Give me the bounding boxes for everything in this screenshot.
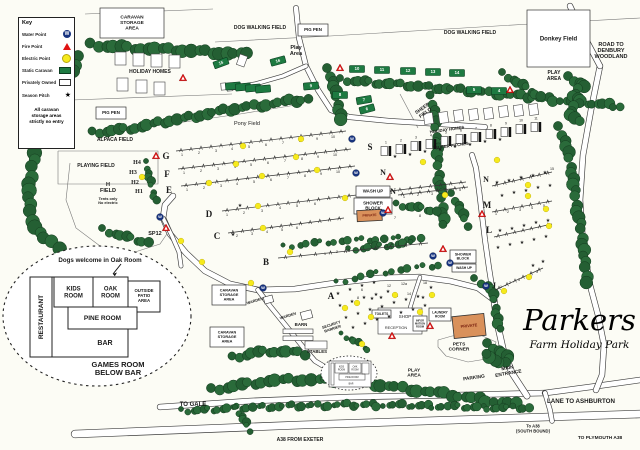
area-box-label: SHOWERBLOCK [455, 252, 472, 260]
park-brand: Parkers Farm Holiday Park [522, 306, 637, 351]
hedge-tree [98, 224, 105, 231]
row-label: H3 [129, 170, 137, 176]
legend-item-label: Water Point [22, 32, 46, 37]
holiday-home [453, 109, 463, 121]
season-pitch-icon: ★ [453, 144, 458, 150]
super-pitch-plot [501, 128, 508, 137]
field-label: DOG WALKING FIELD [234, 25, 287, 31]
water-point-icon: W [63, 30, 71, 38]
pitch-number: 5 [250, 163, 252, 167]
super-pitch-plot [396, 145, 403, 154]
electric-point-icon [233, 161, 239, 167]
privately-owned-van [389, 146, 392, 156]
electric-point-icon [314, 167, 320, 173]
season-pitch-icon: ★ [522, 223, 527, 229]
water-point-letter: W [448, 260, 452, 265]
road [75, 414, 640, 434]
season-pitch-icon: ★ [520, 240, 525, 246]
pitch-number: 4 [231, 147, 233, 151]
hedge-tree [398, 399, 407, 408]
hedge-tree [580, 276, 593, 289]
legend-item: Privately Owned [22, 77, 71, 89]
hedge-tree [396, 234, 401, 239]
electric-point-icon [240, 143, 246, 149]
hedge-tree [366, 270, 374, 278]
pitch-number: 10 [333, 153, 337, 157]
season-pitch-icon: ★ [423, 303, 428, 309]
pitch-number: 3 [217, 167, 219, 171]
kids-room-mini-label: KIDSROOM [338, 366, 345, 371]
hedge-tree [334, 113, 347, 126]
field-label: TO PLYMOUTH A38 [578, 435, 623, 441]
pitch-number: 2 [243, 211, 245, 215]
season-pitch-icon: ★ [519, 175, 524, 181]
season-pitch-icon: ★ [379, 295, 384, 301]
pitch-number: 3 [215, 149, 217, 153]
electric-point-icon [359, 341, 365, 347]
hedge-tree [383, 271, 388, 276]
row-label: E [166, 185, 172, 195]
hedge-tree [497, 325, 504, 332]
season-pitch-icon: ★ [368, 307, 373, 313]
fire-point-icon [63, 43, 71, 50]
row-label: J [492, 281, 496, 290]
season-pitch-icon: ★ [421, 295, 426, 301]
hedge-tree [388, 269, 394, 275]
hedge-tree [127, 233, 134, 240]
private-area: PRIVATE [452, 313, 486, 338]
holiday-home [513, 104, 523, 116]
static-caravan-number: 12 [406, 68, 411, 73]
super-pitch-plot [381, 147, 388, 156]
row-label: N [380, 168, 386, 177]
privately-owned-van [419, 141, 422, 151]
super-pitch-plot [426, 140, 433, 149]
season-pitch-icon: ★ [370, 296, 375, 302]
electric-point-icon [298, 136, 304, 142]
map-legend: Key Water PointWFire PointElectric Point… [18, 17, 75, 149]
hedge-tree [206, 383, 215, 392]
row-label: F [164, 169, 170, 179]
legend-item-label: Electric Point [22, 56, 50, 61]
season-pitch-icon: ★ [387, 314, 392, 320]
season-pitch-icon: ★ [507, 178, 512, 184]
hedge-tree [323, 402, 332, 411]
legend-item-label: Static Caravan [22, 68, 53, 73]
electric-point-icon [501, 288, 507, 294]
pitch-number: 10 [336, 170, 340, 174]
pitch-number: 2 [200, 169, 202, 173]
super-pitch-number: 7 [475, 126, 477, 130]
row-label: N [390, 187, 396, 196]
hedge-tree [408, 239, 413, 244]
pitch-number: 7 [394, 216, 396, 220]
hedge-tree [417, 234, 425, 242]
pitch-number: 4 [266, 230, 268, 234]
games-room-label: GAMES ROOMBELOW BAR [92, 360, 145, 377]
pitch-number: 4 [531, 206, 533, 210]
water-point-letter: W [431, 253, 435, 258]
hedge-tree [575, 116, 584, 125]
bar-mini-label: BAR [349, 382, 354, 385]
oak-room-label: OAKROOM [101, 286, 120, 299]
hedge-tree [248, 403, 257, 412]
holiday-home [169, 55, 180, 68]
area-box-label: PIG PEN [304, 27, 322, 32]
fence-line [72, 94, 232, 100]
season-pitch-icon: ★ [408, 152, 413, 158]
hedge-tree [185, 409, 191, 415]
electric-point-icon [199, 259, 205, 265]
super-pitch-number: 11 [534, 116, 538, 120]
road [410, 277, 420, 308]
hedge-tree [418, 204, 424, 210]
static-caravan-number: 14 [455, 70, 460, 75]
season-pitch-icon: ★ [531, 263, 536, 269]
legend-title: Key [22, 20, 71, 26]
private-area-label: PRIVATE [362, 213, 377, 218]
super-pitch-number: 2 [400, 138, 402, 142]
hedge-tree [339, 331, 343, 335]
hedge-tree [213, 407, 220, 414]
pitch-number: 1 [500, 285, 502, 289]
privately-owned-van [494, 129, 497, 139]
electric-point-icon [178, 238, 184, 244]
hedge-tree [380, 403, 385, 408]
pitch-number: 9 [317, 155, 319, 159]
super-pitch-number: 1 [385, 140, 387, 144]
hedge-tree [420, 262, 425, 267]
field-label: SP12 [148, 231, 161, 237]
hedge-tree [144, 237, 154, 247]
pitch-number: 12a [401, 282, 407, 286]
holiday-home [154, 82, 165, 95]
hedge-tree [119, 123, 127, 131]
electric-point-icon [526, 274, 532, 280]
hedge-tree [297, 96, 305, 104]
hedge-tree [242, 378, 251, 387]
season-pitch-icon: ★ [495, 180, 500, 186]
legend-item: Water PointW [22, 28, 71, 40]
row-label: D [206, 209, 213, 219]
pitch-number: 6 [267, 161, 269, 165]
season-pitch-icon: ★ [399, 310, 404, 316]
season-pitch-icon: ★ [372, 280, 377, 286]
pitch-number: 3 [220, 184, 222, 188]
row-label: N [483, 175, 489, 184]
season-pitch-icon: ★ [536, 185, 541, 191]
pitch-number: 3 [519, 208, 521, 212]
field-label: RECEPTION [385, 326, 407, 330]
legend-item: Electric Point [22, 52, 71, 64]
row-label: G [162, 151, 169, 161]
privately-owned-van [539, 122, 542, 132]
row-label: L [486, 225, 492, 235]
hedge-tree [153, 196, 161, 204]
hedge-tree [482, 349, 491, 358]
electric-point-icon [248, 280, 254, 286]
bar-label: BAR [97, 340, 112, 347]
pitch-number: 6 [270, 178, 272, 182]
hedge-tree [288, 401, 295, 408]
hedge-tree [297, 402, 306, 411]
field-label: PETSCORNER [449, 342, 470, 353]
electric-point-icon [293, 154, 299, 160]
static-caravan [255, 85, 271, 93]
privately-owned-van [509, 127, 512, 137]
electric-point-icon [525, 193, 531, 199]
pitch-number: 1 [226, 213, 228, 217]
hedge-tree [609, 104, 616, 111]
row-label: S [367, 142, 372, 152]
hedge-tree [311, 238, 319, 246]
pitch-number: 5 [253, 180, 255, 184]
season-pitch-icon: ★ [544, 234, 549, 240]
season-pitch-icon: ★ [380, 304, 385, 310]
season-pitch-icon: ★ [534, 220, 539, 226]
hedge-tree [522, 83, 529, 90]
hedge-tree [564, 153, 573, 162]
pine-room-mini-label: PINE ROOM [345, 377, 358, 379]
pitch-number: 10 [331, 135, 335, 139]
season-pitch-icon: ★ [404, 297, 409, 303]
super-pitch-number: 8 [490, 123, 492, 127]
hedge-tree [359, 235, 364, 240]
hedge-tree [616, 103, 624, 111]
field-label: LANE TO ASHBURTON [547, 398, 615, 405]
electric-point-icon [543, 206, 549, 212]
legend-items: Water PointWFire PointElectric PointStat… [22, 28, 71, 101]
pitch-number: 6 [296, 226, 298, 230]
pitch-number: 5 [248, 145, 250, 149]
privately-owned-van [524, 124, 527, 134]
holiday-home [528, 103, 538, 115]
hedge-tree [343, 279, 348, 284]
hedge-tree [281, 243, 285, 247]
hedge-tree [447, 189, 454, 196]
season-pitch-icon: ★ [498, 228, 503, 234]
holiday-home [498, 105, 508, 117]
building [305, 341, 327, 349]
legend-item: Static Caravan [22, 65, 71, 77]
park-map-canvas: 123456789101110111213145487615169CARAVAN… [0, 0, 640, 450]
field-label: STABLES [307, 349, 327, 354]
hedge-tree [377, 242, 382, 247]
pitch-number: 4 [279, 206, 281, 210]
hedge-tree [314, 400, 321, 407]
water-point-letter: W [261, 285, 265, 290]
season-pitch-icon: ★ [411, 307, 416, 313]
pitch-number: 1 [324, 252, 326, 256]
hedge-tree [575, 224, 585, 234]
hedge-tree [484, 406, 490, 412]
pitch-number: 5 [459, 188, 461, 192]
pitch-number: 18 [423, 281, 427, 285]
private-area: PRIVATE [357, 209, 383, 221]
hedge-tree [334, 401, 340, 407]
holiday-home [151, 54, 162, 67]
hedge-tree [343, 236, 351, 244]
hedge-tree [455, 402, 460, 407]
electric-point-icon [494, 157, 500, 163]
hedge-tree [389, 401, 396, 408]
pitch-number: 5 [536, 270, 538, 274]
hedge-tree [258, 346, 266, 354]
electric-point-icon [546, 223, 552, 229]
pitch-number: 1 [403, 195, 405, 199]
area-box-label: PIG PEN [102, 110, 120, 115]
season-pitch-icon: ★ [548, 183, 553, 189]
hedge-tree [259, 402, 265, 408]
field-label: Tents onlyNo electric [98, 197, 118, 205]
hedge-tree [429, 405, 434, 410]
hedge-tree [228, 352, 236, 360]
field-label: PLAYAREA [547, 71, 562, 83]
row-label: A [328, 291, 335, 301]
electric-point-icon [392, 292, 398, 298]
season-pitch-icon: ★ [375, 317, 380, 323]
electric-point-icon [354, 300, 360, 306]
electric-point-icon [255, 203, 261, 209]
super-pitch-number: 9 [505, 121, 507, 125]
hedge-tree [426, 91, 434, 99]
legend-item-label: Privately Owned [22, 80, 56, 85]
pitch-number: 2 [198, 151, 200, 155]
season-pitch-icon: ★ [392, 300, 397, 306]
pitch-number: 3 [261, 209, 263, 213]
pitch-number: 8 [301, 157, 303, 161]
row-label: H4 [133, 160, 141, 166]
season-pitch-icon: ★ [348, 287, 353, 293]
hedge-tree [403, 264, 411, 272]
season-pitch-icon: ★ [429, 285, 434, 291]
hedge-tree [374, 269, 378, 273]
electric-point-icon [62, 54, 71, 63]
pitch-number: 8 [419, 214, 421, 218]
hedge-tree [464, 404, 471, 411]
field-label: HOLIDAY HOMES [129, 69, 171, 75]
super-pitch-plot [486, 130, 493, 139]
electric-point-icon [429, 292, 435, 298]
hedge-tree [470, 274, 477, 281]
field-label: TO GALE [180, 402, 207, 408]
electric-point-icon [287, 249, 293, 255]
area-box-label: WASH UP [456, 266, 473, 270]
holiday-home [136, 80, 147, 93]
pitch-number: 3 [251, 232, 253, 236]
season-pitch-icon: ★ [362, 295, 367, 301]
row-label: H2 [131, 180, 139, 186]
hedge-tree [439, 220, 447, 228]
hedge-tree [473, 402, 482, 411]
season-pitch-icon: ★ [360, 283, 365, 289]
electric-point-icon [342, 195, 348, 201]
season-pitch-icon: ★ [510, 226, 515, 232]
field-label: PlayArea [290, 45, 303, 57]
season-pitch-icon: ★ [543, 170, 548, 176]
hedge-tree [380, 235, 388, 243]
hedge-tree [143, 158, 148, 163]
electric-point-icon [417, 309, 423, 315]
holiday-home [438, 111, 448, 123]
static-caravan-number: 11 [380, 67, 385, 72]
dogs-welcome-label: Dogs welcome in Oak Room [58, 257, 142, 264]
season-pitch-icon: ★ [496, 245, 501, 251]
pitch-number: 1 [186, 188, 188, 192]
hedge-tree [364, 243, 372, 251]
season-pitch-icon: ★ [238, 203, 243, 209]
super-pitch-number: 10 [519, 118, 523, 122]
electric-point-icon [206, 180, 212, 186]
pitch-number: 5 [281, 228, 283, 232]
hedge-tree [434, 262, 441, 269]
hedge-tree [433, 161, 442, 170]
kids-room-label: KIDSROOM [64, 286, 83, 299]
hedge-tree [336, 74, 343, 81]
hedge-tree [334, 279, 338, 283]
building [283, 329, 313, 334]
holiday-home [468, 108, 478, 120]
electric-point-icon [442, 192, 448, 198]
season-pitch-icon: ★ [423, 149, 428, 155]
pitch-number: 1 [181, 153, 183, 157]
pitch-number: 8 [304, 174, 306, 178]
hedge-tree [464, 223, 472, 231]
hedge-tree [344, 336, 349, 341]
super-pitch-plot [471, 133, 478, 142]
pitch-number: 1 [495, 212, 497, 216]
holiday-home [115, 52, 126, 65]
hedge-tree [372, 402, 381, 411]
hedge-tree [317, 239, 321, 243]
pitch-number: 14 [407, 292, 411, 296]
hedge-tree [391, 236, 395, 240]
restaurant-label: RESTAURANT [38, 295, 45, 339]
pitch-number: 15 [550, 167, 554, 171]
field-label: A38 FROM EXETER [277, 437, 324, 443]
pitch-number: 3 [431, 192, 433, 196]
season-pitch-icon: ★ [532, 237, 537, 243]
electric-point-icon [368, 314, 374, 320]
legend-note: All caravan storage areas strictly no en… [22, 107, 71, 124]
hedge-tree [393, 200, 399, 206]
hedge-tree [247, 429, 253, 435]
season-pitch-icon: ★ [65, 92, 71, 99]
field-label: To A38(SOUTH BOUND) [516, 424, 551, 434]
pitch-number: 12 [387, 284, 391, 288]
park-map: 123456789101110111213145487615169CARAVAN… [0, 0, 640, 450]
pitch-number: 6 [265, 143, 267, 147]
season-pitch-icon: ★ [336, 291, 341, 297]
area-box-label: WASH UP [363, 189, 384, 194]
electric-point-icon [139, 174, 145, 180]
hedge-tree [460, 215, 467, 222]
hedge-tree [365, 77, 372, 84]
season-pitch-icon: ★ [468, 142, 473, 148]
electric-point-icon [342, 305, 348, 311]
field-label: PLAYAREA [407, 368, 421, 379]
season-pitch-icon: ★ [541, 259, 546, 265]
season-pitch-icon: ★ [363, 321, 368, 327]
season-pitch-icon: ★ [351, 325, 356, 331]
electric-point-icon [260, 225, 266, 231]
building [300, 310, 313, 321]
pitch-row-line [398, 187, 468, 195]
hedge-tree [437, 403, 444, 410]
hedge-tree [88, 127, 96, 135]
pitch-number: 6 [314, 202, 316, 206]
hedge-tree [446, 85, 453, 92]
